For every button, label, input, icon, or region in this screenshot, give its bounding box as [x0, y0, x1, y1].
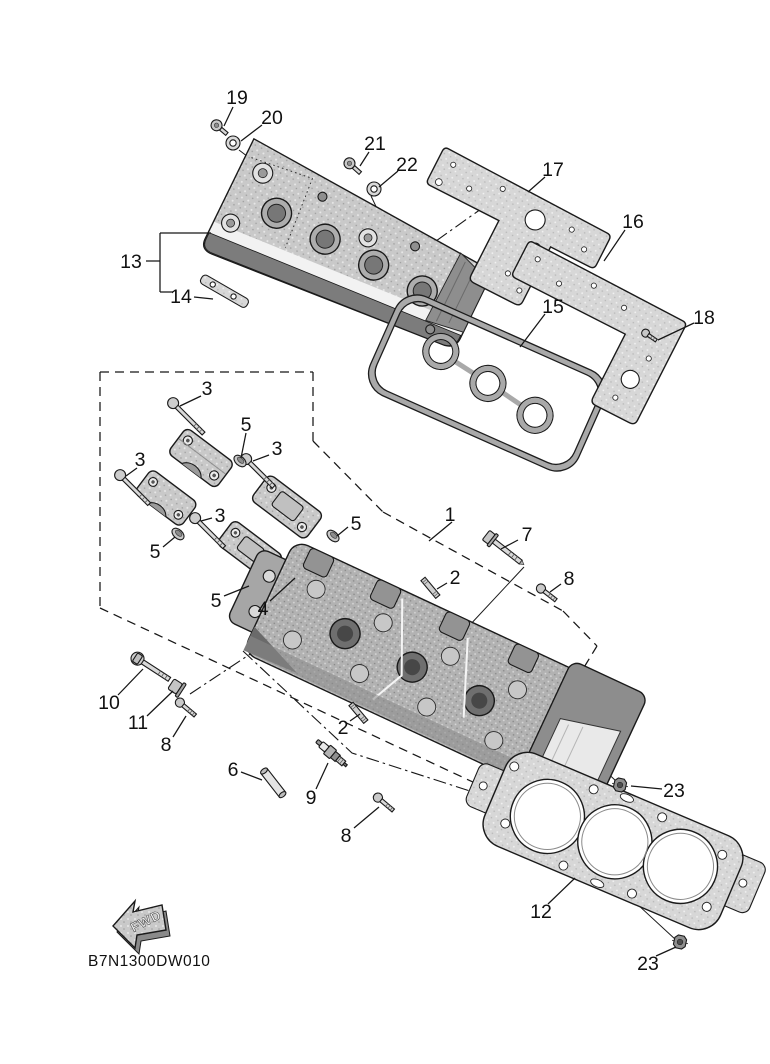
- callout-label-3a: 3: [202, 378, 213, 400]
- callout-label-8c: 8: [341, 825, 352, 847]
- drawing-code: B7N1300DW010: [88, 953, 210, 970]
- callout-leader-7: [501, 540, 518, 549]
- callout-label-8a: 8: [564, 568, 575, 590]
- callout-label-12: 12: [530, 901, 552, 923]
- callout-label-8b: 8: [161, 734, 172, 756]
- callout-leader-9: [316, 763, 328, 789]
- callout-label-4: 4: [258, 598, 269, 620]
- callout-leader-3a: [180, 396, 201, 406]
- callout-leader-8b: [173, 716, 186, 737]
- callout-leader-5b: [163, 537, 175, 547]
- callout-leader-19: [224, 107, 233, 126]
- callout-label-19: 19: [226, 87, 248, 109]
- callout-label-2a: 2: [450, 567, 461, 589]
- head-cover-gasket: [361, 287, 613, 478]
- callout-leader-3d: [201, 518, 212, 521]
- callout-label-17: 17: [542, 159, 564, 181]
- callout-label-20: 20: [261, 107, 283, 129]
- callout-leader-22: [379, 171, 398, 187]
- callout-leader-15: [520, 314, 545, 347]
- callout-label-1: 1: [445, 504, 456, 526]
- cover-bolt-21: [342, 156, 364, 178]
- callout-leader-14: [194, 297, 213, 299]
- spark-plug-9: [313, 737, 350, 770]
- callout-label-5d: 5: [211, 590, 222, 612]
- callout-label-3b: 3: [135, 449, 146, 471]
- callout-leader-10: [118, 669, 143, 695]
- washer-20: [226, 136, 240, 150]
- washer-22: [367, 182, 381, 196]
- exploded-parts-diagram: FWD B7N1300DW010 19202122171618151314333…: [0, 0, 770, 1064]
- parts-diagram-page: FWD B7N1300DW010 19202122171618151314333…: [0, 0, 770, 1064]
- callout-leader-8c: [354, 807, 379, 828]
- cover-gasket-strip: [199, 274, 250, 309]
- bolt-10: [129, 650, 173, 685]
- callout-label-3d: 3: [215, 505, 226, 527]
- dowel-pin-6: [259, 767, 286, 799]
- callout-label-11: 11: [128, 712, 148, 734]
- callout-leader-5c: [337, 527, 348, 536]
- callout-leader-11: [147, 691, 173, 716]
- callout-leader-8a: [550, 584, 561, 592]
- callout-label-15: 15: [542, 296, 564, 318]
- callout-label-5c: 5: [351, 513, 362, 535]
- callout-leader-12: [548, 878, 575, 904]
- callout-label-21: 21: [364, 133, 386, 155]
- callout-label-5b: 5: [150, 541, 161, 563]
- callout-label-14: 14: [170, 286, 192, 308]
- callout-label-3c: 3: [272, 438, 283, 460]
- fwd-arrow: FWD: [113, 901, 170, 954]
- callout-label-18: 18: [693, 307, 715, 329]
- callout-leader-6: [241, 772, 262, 780]
- callout-label-9: 9: [306, 787, 317, 809]
- callout-label-2b: 2: [338, 717, 349, 739]
- callout-label-23b: 23: [637, 953, 659, 975]
- callout-leader-23a: [631, 786, 662, 789]
- callout-label-6: 6: [228, 759, 239, 781]
- callout-leader-23b: [656, 947, 676, 956]
- callout-leader-2a: [437, 583, 447, 589]
- callout-leader-20: [241, 125, 262, 141]
- callout-label-7: 7: [522, 524, 533, 546]
- callout-label-23a: 23: [663, 780, 685, 802]
- callout-label-22: 22: [396, 154, 418, 176]
- callout-label-13: 13: [120, 251, 142, 273]
- callout-label-10: 10: [98, 692, 120, 714]
- callout-label-16: 16: [622, 211, 644, 233]
- callout-leader-3c: [253, 455, 269, 461]
- callout-label-5a: 5: [241, 414, 252, 436]
